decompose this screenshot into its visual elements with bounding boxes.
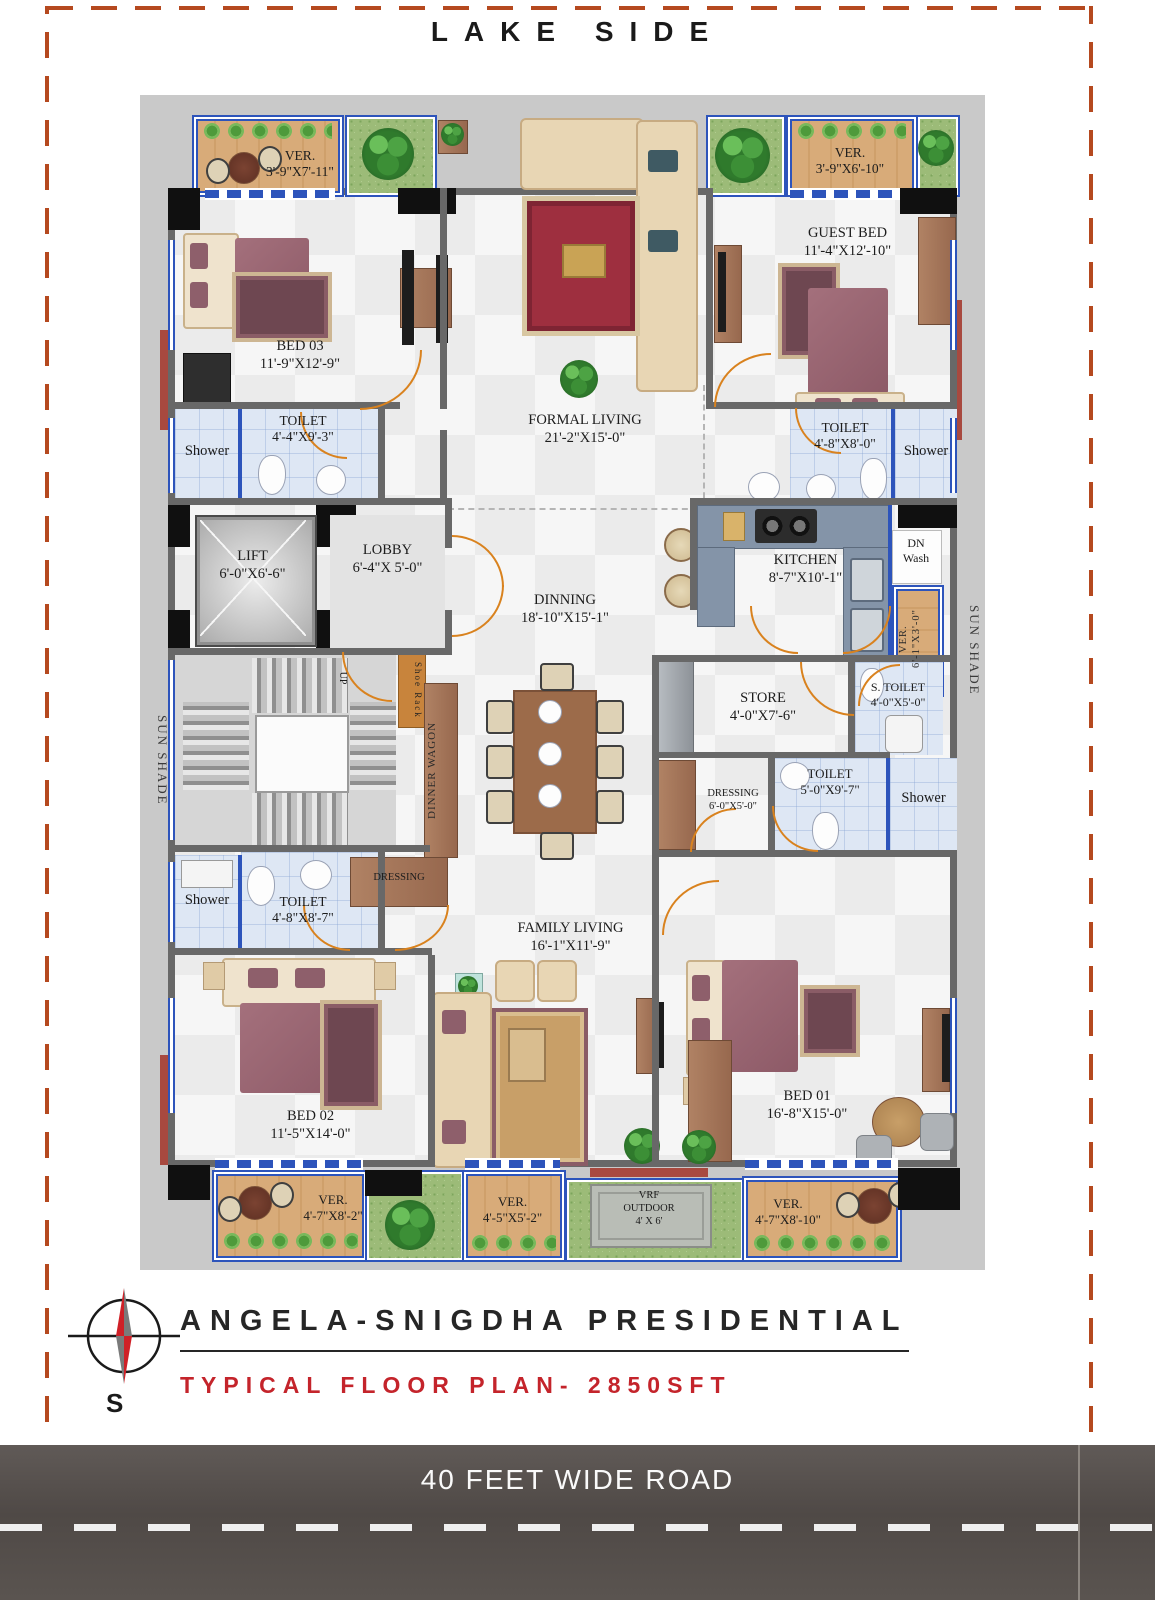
project-title: ANGELA-SNIGDHA PRESIDENTIAL [180,1305,909,1352]
bed02-pillow [248,968,278,988]
room-label-dinner-wagon: DINNER WAGON [426,700,456,840]
room-label-toilet-bed01: TOILET5'-0"X9'-7" [780,766,880,798]
room-label-formal-living: FORMAL LIVING21'-2"X15'-0" [495,412,675,447]
window-sill [215,1158,363,1170]
wall-segment [652,852,659,1167]
room-label-lobby: LOBBY6'-4"X 5'-0" [330,542,445,577]
dressing-wardrobe [658,760,696,850]
dining-chair [596,700,624,734]
road-seam [1078,1445,1080,1600]
dining-chair [596,790,624,824]
room-label-ver-top-left: VER.3'-9"X7'-11" [255,148,345,181]
wall-segment [440,430,447,505]
stair-landing [255,715,349,793]
room-label-sun-shade-left: SUN SHADE [144,660,170,860]
window [950,240,957,350]
formal-sofa-top [520,118,644,190]
bed01-tv [942,1014,950,1082]
plant-icon [560,360,598,398]
formal-coffee-table [562,244,606,278]
window [950,998,957,1113]
property-line-left [45,6,49,1422]
space-divider [703,385,705,508]
shower-tray [885,715,923,753]
wall-segment [652,655,659,852]
window-sill [205,188,335,200]
wall-segment [378,852,385,952]
wall-segment [706,188,713,409]
room-label-ver-top-right: VER.3'-9"X6'-10" [790,145,910,178]
bed03-pillow [190,243,208,269]
column [898,1168,960,1210]
cutting-board [723,512,745,541]
room-label-dressing-bed02: DRESSING [355,872,443,885]
window-sill [465,1158,560,1170]
property-line-right [1089,6,1093,1432]
dining-chair [486,700,514,734]
wall-segment [168,845,430,852]
room-label-shoe-rack: Shoe Rack [399,655,423,725]
toilet-basin [300,860,332,890]
bed03-tv [402,250,414,345]
wall-accent [590,1168,708,1177]
bed01-pillow [692,975,710,1001]
veranda-shrubs [200,120,332,140]
plant-icon [918,130,954,166]
room-label-ver-kitchen: VER.6'-1"X3'-0" [898,592,934,686]
room-label-shower-bed01: Shower [890,790,957,808]
room-label-up: UP [336,666,348,690]
dining-chair [486,790,514,824]
bed01-rug [800,985,860,1057]
window [168,862,175,942]
column [168,1165,210,1200]
room-label-s-toilet: S. TOILET4'-0"X5'-0" [856,680,940,709]
lobby-floor [330,515,445,650]
room-label-dinning: DINNING18'-10"X15'-1" [485,592,645,627]
stair-flight [183,702,249,790]
plan-subtitle: TYPICAL FLOOR PLAN- 2850SFT [180,1372,732,1399]
wall-segment [690,498,697,610]
stove [755,509,817,543]
guest-tv [718,252,726,332]
room-label-vrf-outdoor: VRFOUTDOOR4' X 6' [592,1190,706,1228]
bed02-pillow [295,968,325,988]
room-label-toilet-bed03: TOILET4'-4"X9'-3" [243,413,363,446]
dining-chair [540,663,574,691]
sofa-cushion [648,150,678,172]
wall-segment [428,955,435,1167]
stair-flight [252,793,348,845]
column [398,188,456,214]
room-label-ver-bottom-right: VER.4'-7"X8'-10" [745,1196,831,1228]
wall-segment [690,498,957,505]
column [168,610,190,652]
room-label-kitchen: KITCHEN8'-7"X10'-1" [733,552,878,587]
road-center-line [0,1524,1155,1531]
family-armchair [495,960,535,1002]
room-label-bed02: BED 0211'-5"X14'-0" [228,1108,393,1143]
room-label-guest-bed: GUEST BED11'-4"X12'-10" [760,225,935,260]
wall-segment [378,402,385,505]
veranda-shrubs [794,120,906,140]
room-label-bed03: BED 0311'-9"X12'-9" [215,338,385,373]
dining-chair [486,745,514,779]
property-line-top [47,6,1093,10]
bed02-side-table [374,962,396,990]
marble-shelf [181,860,233,888]
toilet-wc [258,455,286,495]
room-label-shower-bed02: Shower [175,892,239,910]
guest-bed [808,288,888,394]
column [900,188,957,214]
kitchen-counter-left [697,547,735,627]
room-label-bed01: BED 0116'-8"X15'-0" [722,1088,892,1123]
dining-chair [540,832,574,860]
wall-segment [445,498,452,548]
compass-south-label: S [106,1388,123,1419]
room-label-ver-bottom-mid: VER.4'-5"X5'-2" [465,1194,560,1226]
lake-side-label: LAKE SIDE [0,16,1155,48]
window [168,998,175,1113]
dining-chair [596,745,624,779]
bed03-pillow [190,282,208,308]
stair-flight [350,702,396,790]
space-divider [448,508,698,510]
wall-segment [445,610,452,655]
window [168,240,175,350]
family-coffee-table [508,1028,546,1082]
veranda-shrubs [220,1230,358,1250]
room-label-toilet-bed02: TOILET4'-8"X8'-7" [243,894,363,927]
room-label-shower-guest: Shower [893,443,959,461]
room-label-lift: LIFT6'-0"X6'-6" [195,548,310,583]
wall-segment [168,498,445,505]
window-sill [745,1158,898,1170]
stair-flight [252,658,348,713]
plant-icon [715,128,770,183]
room-label-family-living: FAMILY LIVING16'-1"X11'-9" [478,920,663,955]
plant-icon [362,128,414,180]
room-label-dn-wash: DNWash [892,536,940,565]
compass-icon [68,1282,180,1400]
bed02-rug [320,1000,382,1110]
bed02-side-table [203,962,225,990]
wall-segment [168,648,445,655]
room-label-sun-shade-right: SUN SHADE [956,505,982,795]
room-label-store: STORE4'-0"X7'-6" [688,690,838,725]
dining-plate [538,784,562,808]
toilet-wc [860,458,887,500]
veranda-chair [836,1192,860,1218]
sofa-cushion [648,230,678,252]
wall-segment [440,188,447,409]
column [898,503,957,528]
veranda-table [856,1188,892,1224]
floor-plan-page: LAKE SIDE SUN SHADE SUN SHADE VER.3'-9"X… [0,0,1155,1600]
room-label-dressing-bed01: DRESSING6'-0"X5'-0" [696,788,770,814]
veranda-table [238,1186,272,1220]
sofa-cushion [442,1010,466,1034]
room-label-shower-bed03: Shower [175,443,239,461]
veranda-shrubs [468,1232,556,1252]
veranda-chair [206,158,230,184]
dining-plate [538,742,562,766]
sofa-cushion [442,1120,466,1144]
window-sill [790,188,908,200]
road-label: 40 FEET WIDE ROAD [0,1464,1155,1496]
bed03-rug [232,272,332,342]
plant-icon [682,1130,716,1164]
plant-icon [441,123,464,146]
room-label-ver-bottom-left: VER.4'-7"X8'-2" [290,1192,376,1224]
toilet-basin [316,465,346,495]
veranda-shrubs [750,1232,890,1252]
bed01-chair [920,1113,954,1151]
column [168,505,190,547]
family-armchair [537,960,577,1002]
wall-segment [168,948,432,955]
bed01-bed [722,960,798,1072]
plant-icon [385,1200,435,1250]
veranda-chair [218,1196,242,1222]
column [168,188,200,230]
room-label-toilet-guest: TOILET4'-8"X8'-0" [795,420,895,453]
window [168,418,175,493]
dining-plate [538,700,562,724]
